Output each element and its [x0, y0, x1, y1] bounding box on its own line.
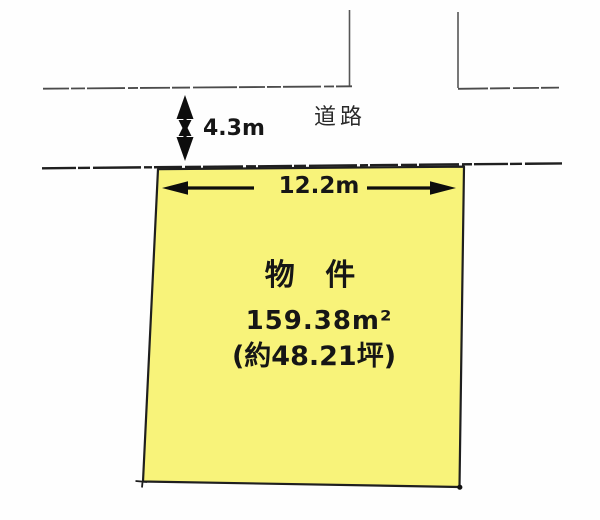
road-width-label: 4.3m: [203, 118, 265, 140]
corner-mark-bottom-left: [136, 481, 148, 488]
lot-plan-diagram: 道路 4.3m 12.2m 物 件 159.38m² (約48.21坪): [0, 0, 600, 520]
road-label: 道路: [314, 107, 366, 129]
road-far-edge-left-line: [43, 86, 352, 88]
parcel-name-label: 物 件: [265, 261, 355, 291]
parcel-area-label: 159.38m²: [246, 308, 393, 334]
road-far-edge-right-line: [458, 88, 561, 89]
frontage-label: 12.2m: [279, 175, 360, 198]
arrow-up-small-icon: [179, 123, 192, 136]
arrow-down-icon: [177, 137, 194, 161]
road-width-arrow: [177, 95, 194, 161]
parcel-tsubo-label: (約48.21坪): [232, 343, 396, 370]
arrow-up-icon: [177, 95, 194, 119]
corner-mark-bottom-right: [457, 485, 462, 490]
